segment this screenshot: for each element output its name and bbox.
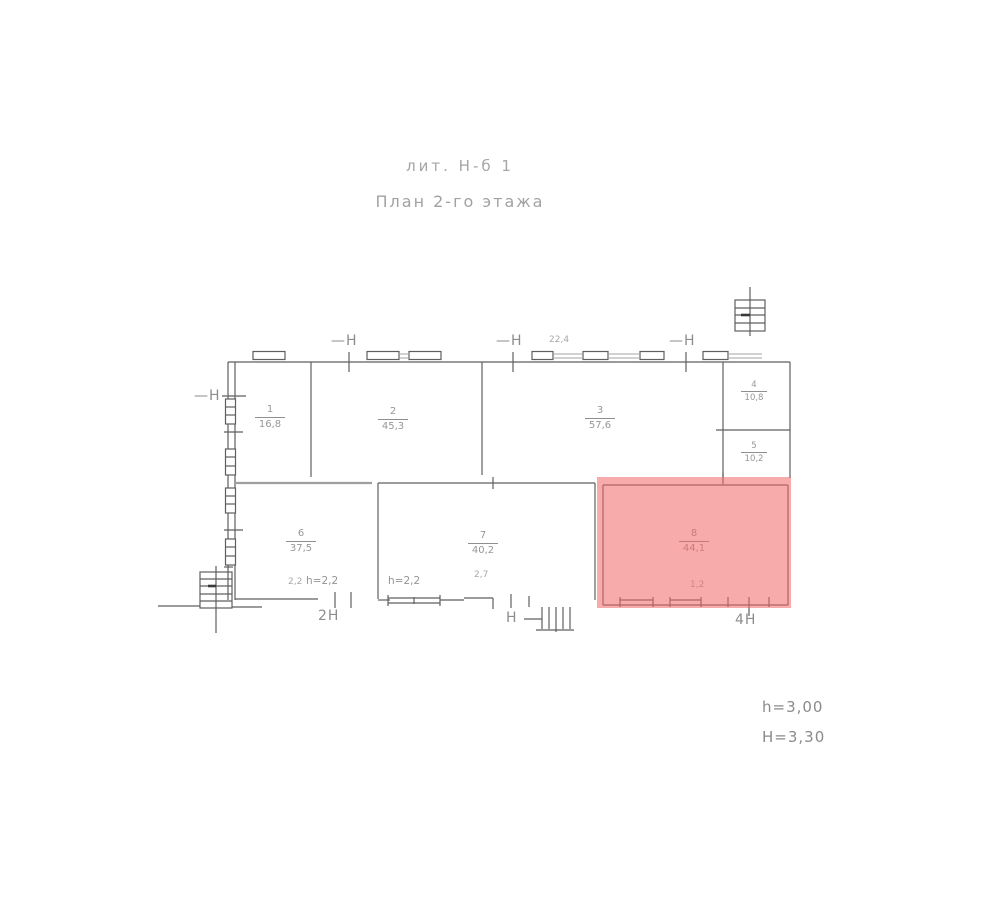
room-label-7: 7 40,2 <box>461 530 505 557</box>
marker-bottom-left: 2Н <box>318 608 339 624</box>
height-room7: h=2,2 <box>388 575 420 587</box>
room-label-4: 4 10,8 <box>736 380 772 403</box>
room-label-1: 1 16,8 <box>248 404 292 431</box>
marker-top-1: —Н <box>331 333 358 349</box>
staircase-top-right-icon <box>735 287 765 336</box>
height-room6: h=2,2 <box>306 575 338 587</box>
dimension-room6-prefix: 2,2 <box>288 577 302 587</box>
highlighted-room-overlay[interactable] <box>597 477 791 608</box>
staircase-bottom-middle-icon <box>524 607 574 632</box>
ceiling-height-note: h=3,00 <box>762 698 823 716</box>
staircase-bottom-left-icon <box>158 566 233 633</box>
floorplan-linework <box>0 0 1000 900</box>
building-height-note: Н=3,30 <box>762 728 825 746</box>
floorplan-page: лит. Н-б 1 План 2-го этажа —Н —Н —Н —Н 2… <box>0 0 1000 900</box>
room-label-3: 3 57,6 <box>578 405 622 432</box>
bottom-walls <box>232 592 529 609</box>
windows-left-wall-icon <box>226 399 236 565</box>
dimension-porch: 2,7 <box>474 570 488 580</box>
plan-title-line1: лит. Н-б 1 <box>385 157 535 175</box>
marker-bottom-middle: Н <box>506 610 518 626</box>
marker-bottom-right: 4Н <box>735 612 756 628</box>
room-label-2: 2 45,3 <box>371 406 415 433</box>
marker-left: —Н <box>194 388 221 404</box>
room-label-5: 5 10,2 <box>736 441 772 464</box>
plan-title-line2: План 2-го этажа <box>355 192 565 211</box>
window-room7-icon <box>388 595 440 606</box>
dimension-top-wall: 22,4 <box>549 335 569 345</box>
marker-top-2: —Н <box>496 333 523 349</box>
room-label-6: 6 37,5 <box>279 528 323 555</box>
marker-top-3: —Н <box>669 333 696 349</box>
